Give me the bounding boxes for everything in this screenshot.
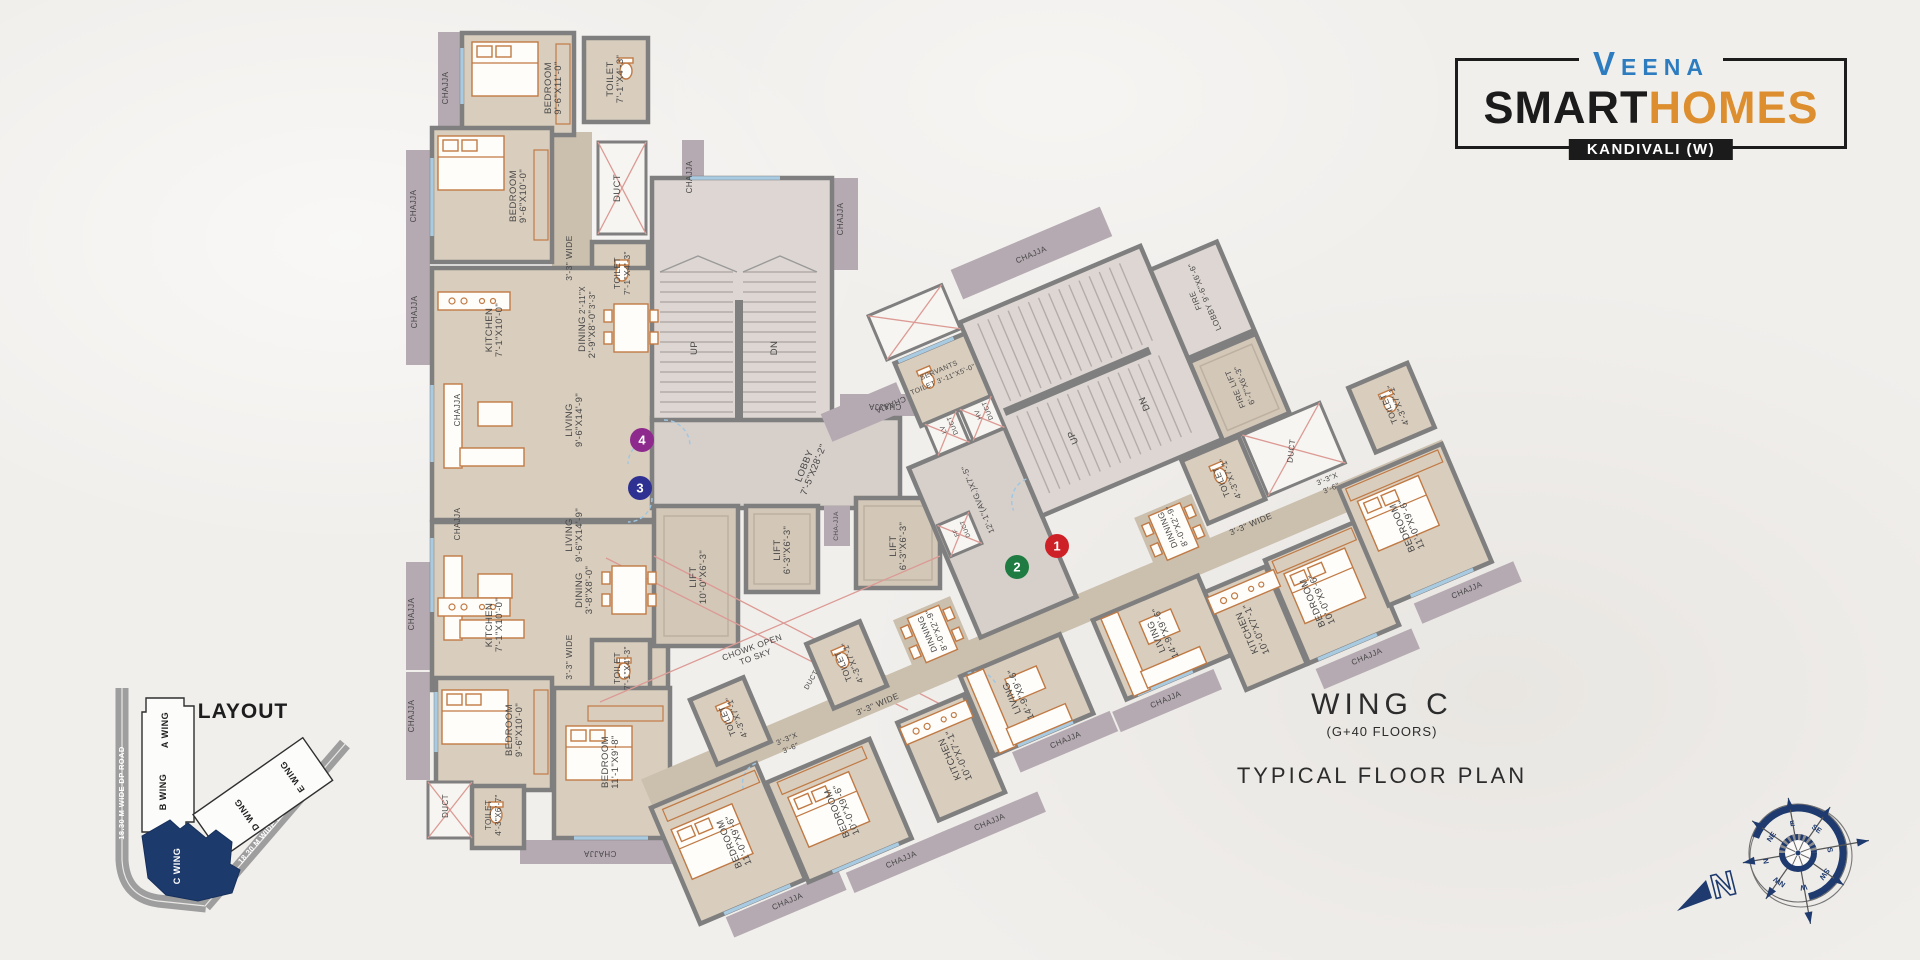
wing-a-label: A WING <box>160 712 170 748</box>
plan-label: CHAJJA <box>685 160 694 193</box>
wing-title: WING C <box>1232 688 1532 722</box>
svg-text:3: 3 <box>636 481 643 496</box>
north-arrow <box>1677 880 1712 911</box>
svg-text:2: 2 <box>1013 560 1020 575</box>
svg-text:1: 1 <box>1053 539 1060 554</box>
wing-b-label: B WING <box>158 774 168 811</box>
brand-wordmark: SMARTHOMES <box>1470 85 1832 130</box>
compass-point: W <box>1798 882 1807 892</box>
north-letter: N <box>1707 864 1740 907</box>
plan-label: CHAJJA <box>441 71 450 104</box>
plan-title-block: WING C (G+40 FLOORS) TYPICAL FLOOR PLAN <box>1232 688 1532 789</box>
left-wing <box>406 32 940 864</box>
plan-label: KITCHEN7'-1"X10'-0" <box>484 303 505 357</box>
compass-point: S <box>1825 847 1835 854</box>
brand-homes: HOMES <box>1648 82 1818 133</box>
plan-label: CHAJJA <box>410 295 419 328</box>
compass: NNEESESSWWNW N <box>1677 795 1870 924</box>
plan-label: BEDROOM9'-6"X11'-0" <box>543 61 564 115</box>
compass-point: E <box>1789 819 1796 829</box>
brand-logo: VEENA SMARTHOMES KANDIVALI (W) <box>1455 58 1847 149</box>
badge-3: 3 <box>628 476 652 500</box>
plan-label: DUCT <box>612 174 623 202</box>
plan-label: CHAJJA <box>409 189 418 222</box>
plan-label: CHAJJA <box>453 507 462 540</box>
plan-label: TOILET4'-3"X6'-7" <box>484 794 503 836</box>
logo-box: VEENA SMARTHOMES KANDIVALI (W) <box>1455 58 1847 149</box>
layout-map-title: LAYOUT <box>183 700 303 724</box>
plan-label: TOILET7'-1"X4'-3" <box>605 55 626 104</box>
plan-label: CHAJJA <box>583 849 616 858</box>
plan-label: DINING2'-9"X8'-0" <box>577 310 598 359</box>
plan-label: 3'-3" WIDE <box>564 235 574 280</box>
plan-type-title: TYPICAL FLOOR PLAN <box>1232 763 1532 789</box>
plan-label: DUCT <box>441 794 450 818</box>
compass-point: NW <box>1771 874 1787 889</box>
plan-label: CHAJJA <box>868 402 901 411</box>
badge-4: 4 <box>630 428 654 452</box>
plan-label: KITCHEN7'-1"X10'-0" <box>484 598 505 652</box>
brand-name: VEENA <box>1579 45 1723 83</box>
lobby <box>652 418 900 508</box>
plan-label: DN <box>769 341 780 356</box>
svg-text:4: 4 <box>638 433 646 448</box>
road-left-label: 18.30 M WIDE DP ROAD <box>117 746 126 839</box>
badge-2: 2 <box>1005 555 1029 579</box>
plan-label: CHA-JJA <box>833 511 840 541</box>
plan-label: BEDROOM9'-6"X10'-0" <box>504 703 525 757</box>
plan-label: DUCT <box>803 669 820 691</box>
plan-label: CHAJJA <box>836 202 845 235</box>
plan-label: DINING3'-8"X8'-0" <box>574 566 595 615</box>
plan-label: CHAJJA <box>453 393 462 426</box>
brand-location: KANDIVALI (W) <box>1569 139 1733 160</box>
plan-label: TOILET7'-1"X4'-3" <box>612 646 632 690</box>
badge-1: 1 <box>1045 534 1069 558</box>
wing-c-label: C WING <box>172 848 182 885</box>
floors-subtitle: (G+40 FLOORS) <box>1232 724 1532 739</box>
plan-label: CHAJJA <box>407 597 416 630</box>
plan-label: BEDROOM9'-6"X10'-0" <box>508 169 529 223</box>
brand-smart: SMART <box>1484 82 1649 133</box>
plan-label: CHAJJA <box>407 699 416 732</box>
plan-label: UP <box>689 341 700 355</box>
plan-label: 3'-3" WIDE <box>564 634 574 679</box>
plan-label: TOILET7'-1"X4'-3" <box>612 251 632 295</box>
plan-label: BEDROOM11'-1"X9'-8" <box>600 735 621 789</box>
compass-point: NE <box>1765 830 1778 844</box>
